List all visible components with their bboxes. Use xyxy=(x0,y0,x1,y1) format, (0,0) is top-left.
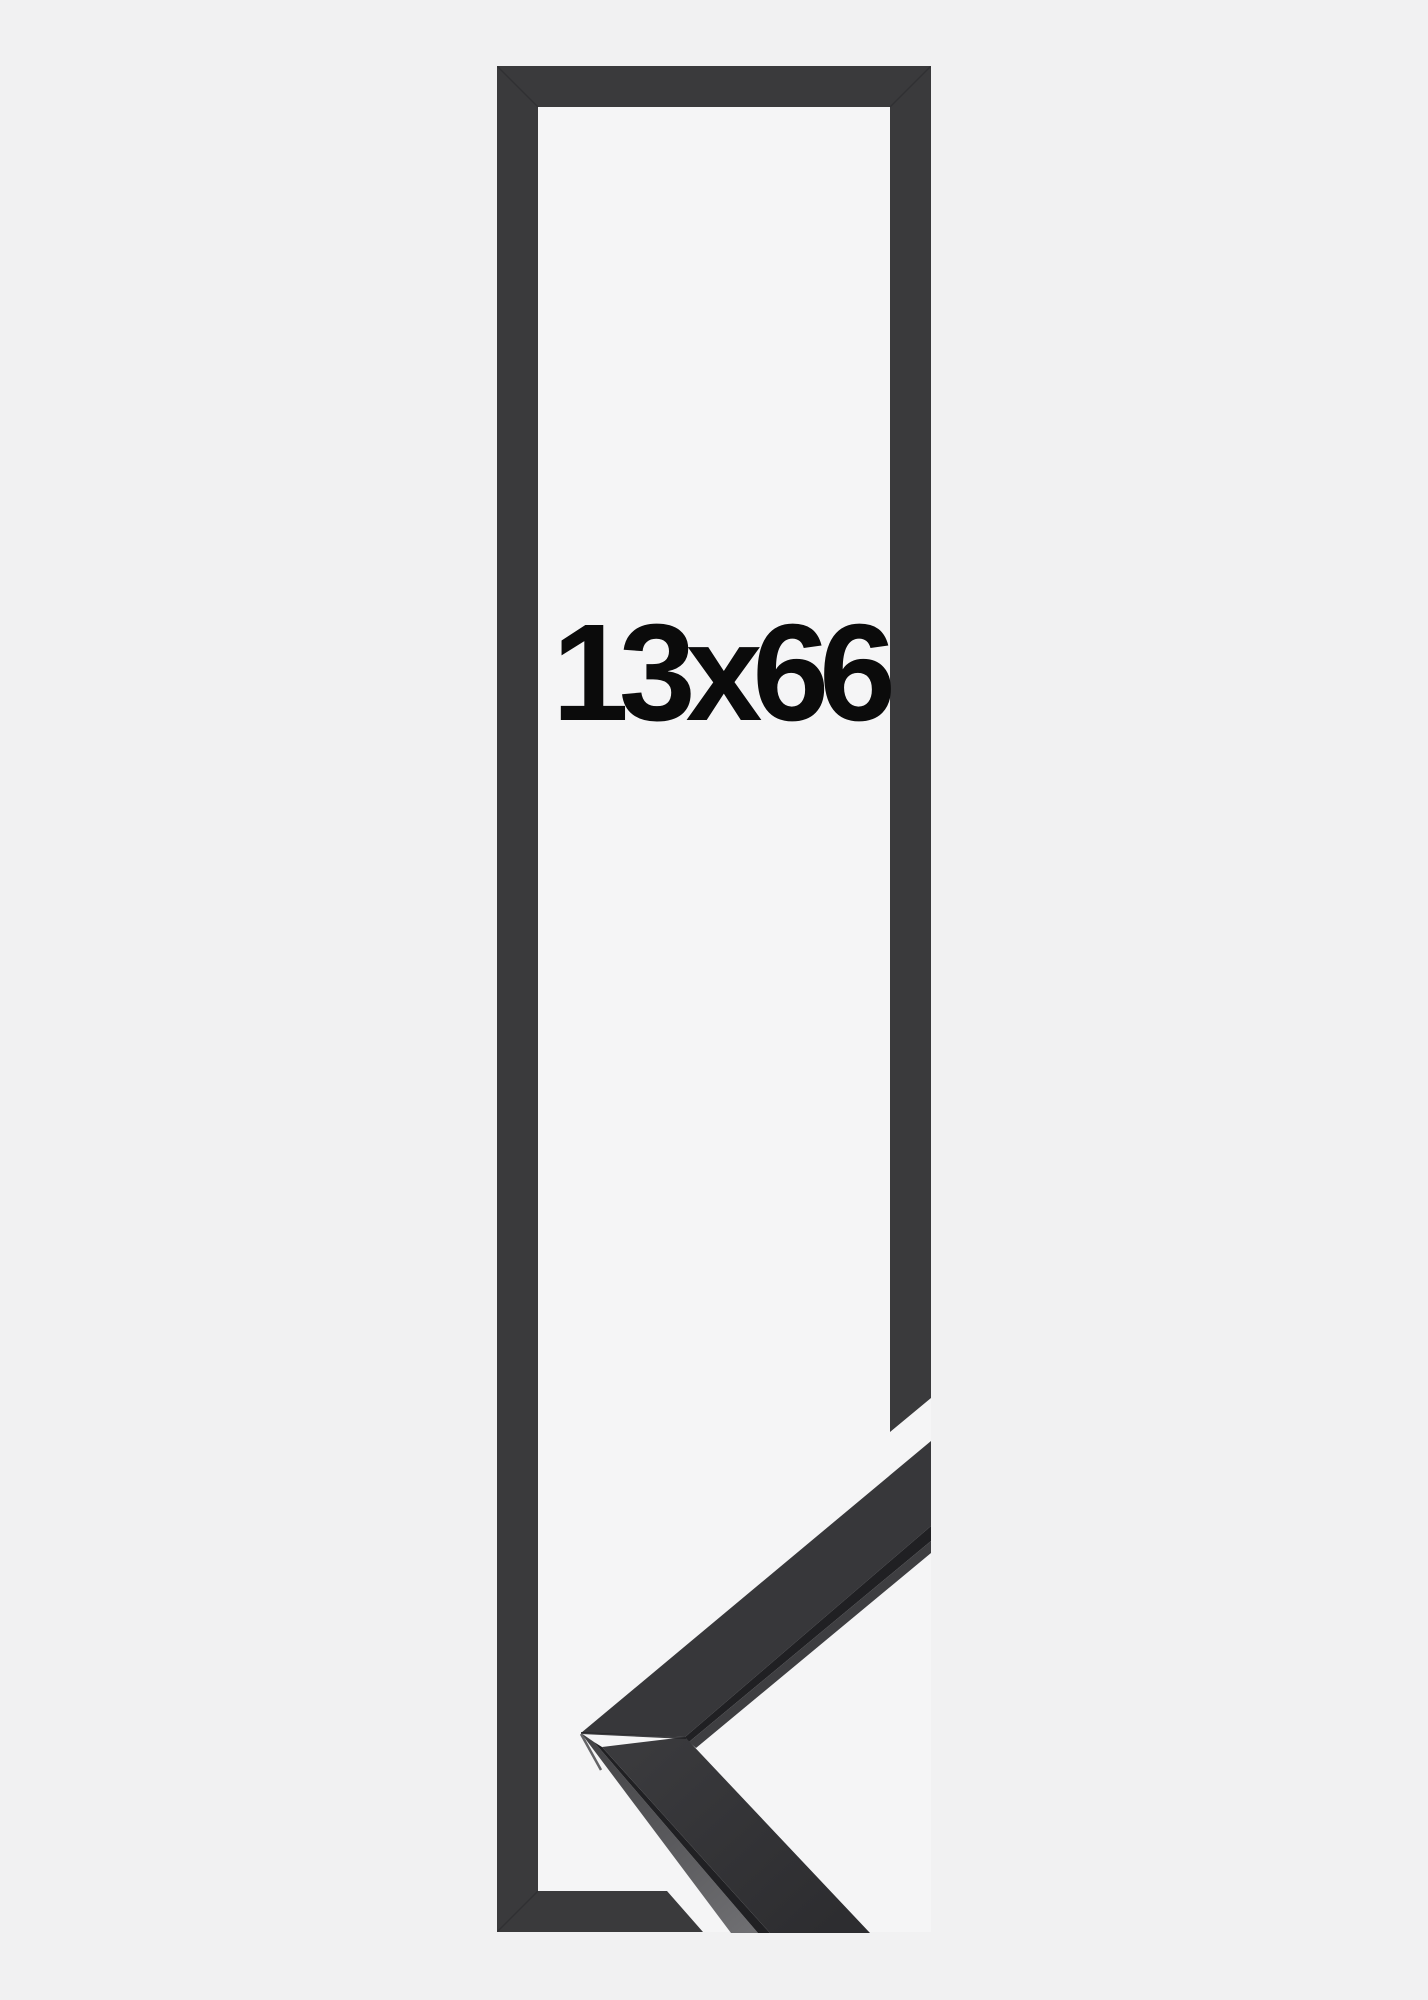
frame-illustration xyxy=(0,0,1428,2000)
product-image: 13x66 xyxy=(0,0,1428,2000)
size-label: 13x66 xyxy=(497,597,931,749)
